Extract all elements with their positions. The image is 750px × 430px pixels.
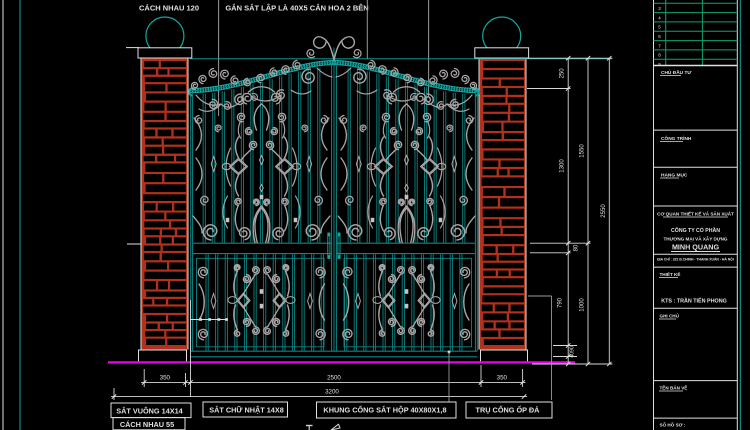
svg-text:KTS : TRẦN TIẾN PHONG: KTS : TRẦN TIẾN PHONG bbox=[661, 298, 727, 305]
svg-text:CHỦ ĐẦU TƯ: CHỦ ĐẦU TƯ bbox=[661, 69, 691, 76]
svg-text:CÁCH NHAU 120: CÁCH NHAU 120 bbox=[139, 4, 199, 13]
svg-text:GHI CHÚ: GHI CHÚ bbox=[660, 313, 680, 319]
svg-text:SẮT CHỮ NHẬT 14X8: SẮT CHỮ NHẬT 14X8 bbox=[209, 406, 284, 415]
svg-text:THIẾT KẾ: THIẾT KẾ bbox=[660, 271, 681, 277]
svg-text:350: 350 bbox=[497, 375, 508, 382]
svg-text:350: 350 bbox=[160, 375, 171, 382]
svg-text:250: 250 bbox=[560, 68, 566, 79]
svg-text:1300: 1300 bbox=[560, 159, 566, 173]
svg-text:1550: 1550 bbox=[580, 144, 586, 158]
svg-text:3200: 3200 bbox=[325, 389, 339, 396]
svg-text:TÊN BẢN VẼ: TÊN BẢN VẼ bbox=[660, 384, 688, 391]
svg-text:1000: 1000 bbox=[580, 298, 586, 312]
svg-text:ĐỊA CHỈ : 322 Đ.CHINH - THANH: ĐỊA CHỈ : 322 Đ.CHINH - THANH XUÂN - HÀ … bbox=[657, 256, 734, 261]
svg-text:MINH QUANG: MINH QUANG bbox=[672, 243, 720, 252]
svg-text:80: 80 bbox=[574, 244, 580, 251]
svg-text:SẮT VUÔNG 14X14: SẮT VUÔNG 14X14 bbox=[116, 406, 183, 415]
svg-text:SỐ HỒ SƠ :: SỐ HỒ SƠ : bbox=[660, 422, 686, 428]
svg-text:GẮN SẮT LẬP LÀ 40X5 CẮN HOA 2: GẮN SẮT LẬP LÀ 40X5 CẮN HOA 2 BÊN bbox=[225, 4, 368, 13]
svg-text:2500: 2500 bbox=[327, 375, 341, 382]
svg-text:THƯƠNG MẠI VÀ XÂY DỰNG: THƯƠNG MẠI VÀ XÂY DỰNG bbox=[663, 236, 727, 242]
svg-text:CƠ QUAN THIẾT KẾ VÀ SẢN XUẤT: CƠ QUAN THIẾT KẾ VÀ SẢN XUẤT bbox=[657, 211, 734, 217]
svg-text:2550: 2550 bbox=[601, 204, 607, 218]
svg-text:4090: 4090 bbox=[570, 346, 576, 358]
svg-text:KHUNG CỔNG SẮT HỘP 40X80X1,8: KHUNG CỔNG SẮT HỘP 40X80X1,8 bbox=[323, 406, 446, 415]
svg-text:TRỤ CỔNG ỐP ĐÁ: TRỤ CỔNG ỐP ĐÁ bbox=[476, 405, 541, 415]
svg-text:CÔNG TY CỔ PHẦN: CÔNG TY CỔ PHẦN bbox=[671, 226, 720, 234]
svg-text:HẠNG MỤC: HẠNG MỤC bbox=[661, 173, 688, 179]
svg-text:CÁCH NHAU 55: CÁCH NHAU 55 bbox=[120, 420, 174, 429]
svg-text:790: 790 bbox=[558, 297, 564, 308]
